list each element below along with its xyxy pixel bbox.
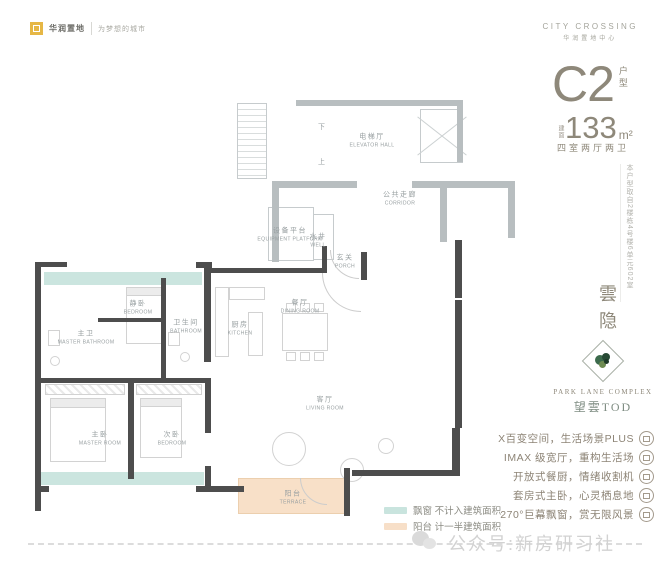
room-label-bathroom: 卫生间BATHROOM (167, 318, 204, 335)
furniture (229, 287, 265, 300)
stairwell (237, 103, 267, 179)
wall-segment (205, 383, 211, 433)
furniture (50, 356, 60, 366)
wall-segment (35, 486, 49, 492)
wall-segment (205, 466, 211, 492)
furniture (140, 398, 182, 407)
room-label-corridor: 公共走廊CORRIDOR (382, 190, 418, 207)
wall-segment (161, 278, 166, 380)
wall-segment (322, 246, 327, 273)
wall-segment (344, 468, 350, 516)
wall-segment (196, 486, 244, 492)
room-label-bedroom-quiet: 静卧BEDROOM (121, 299, 155, 316)
furniture (286, 352, 296, 361)
furniture (314, 352, 324, 361)
wall-segment (452, 428, 460, 476)
wall-segment (455, 240, 462, 298)
wall-segment (128, 383, 134, 479)
wall-segment (35, 262, 41, 511)
furniture (272, 432, 306, 466)
wall-segment-light (508, 181, 515, 238)
furniture (180, 352, 190, 362)
furniture (136, 384, 202, 395)
wall-segment (352, 470, 456, 476)
bay-window-zone (40, 472, 204, 485)
furniture (378, 438, 394, 454)
furniture (140, 398, 182, 458)
room-label-terrace: 阳台TERRACE (277, 489, 308, 506)
wall-segment-light (440, 188, 447, 242)
wall-segment-light (412, 181, 515, 188)
furniture (50, 398, 106, 408)
room-label-bedroom2: 次卧BEDROOM (155, 430, 189, 447)
wall-segment (455, 300, 462, 428)
furniture (45, 384, 125, 395)
furniture (126, 287, 163, 296)
door-arc (322, 273, 361, 312)
wall-segment (361, 252, 367, 280)
room-label-living-room: 客厅LIVING ROOM (303, 395, 347, 412)
room-label-kitchen: 厨房KITCHEN (225, 320, 254, 337)
furniture (300, 352, 310, 361)
furniture (282, 313, 328, 351)
wall-segment-light (272, 181, 357, 188)
wall-segment (211, 268, 327, 273)
room-label-equipment-platform: 设备平台EQUIPMENT PLATFORM (252, 226, 329, 243)
room-label-dining-room: 餐厅DINING ROOM (277, 298, 323, 315)
room-label-porch: 玄关PORCH (333, 253, 357, 270)
page: 华润置地 为梦想的城市 CITY CROSSING 华润置地中心 C2 户型 建… (0, 0, 660, 570)
wall-segment (35, 262, 67, 267)
wall-segment (35, 378, 211, 383)
room-label-master-room: 主卧MASTER ROOM (75, 430, 125, 447)
bay-window-zone (44, 272, 202, 285)
wall-segment (98, 318, 164, 322)
floorplan: 下 上 电梯厅ELEVATOR HALL 公共走廊CORRIDOR 水井WELL… (0, 0, 660, 570)
room-label-master-bathroom: 主卫MASTER BATHROOM (53, 329, 120, 346)
wall-segment-light (296, 100, 463, 106)
stair-down-label: 下 (318, 122, 325, 132)
wall-segment-light (457, 100, 463, 162)
wall-segment (204, 262, 211, 362)
stair-up-label: 上 (318, 157, 325, 167)
room-label-elevator-hall: 电梯厅ELEVATOR HALL (346, 132, 399, 149)
